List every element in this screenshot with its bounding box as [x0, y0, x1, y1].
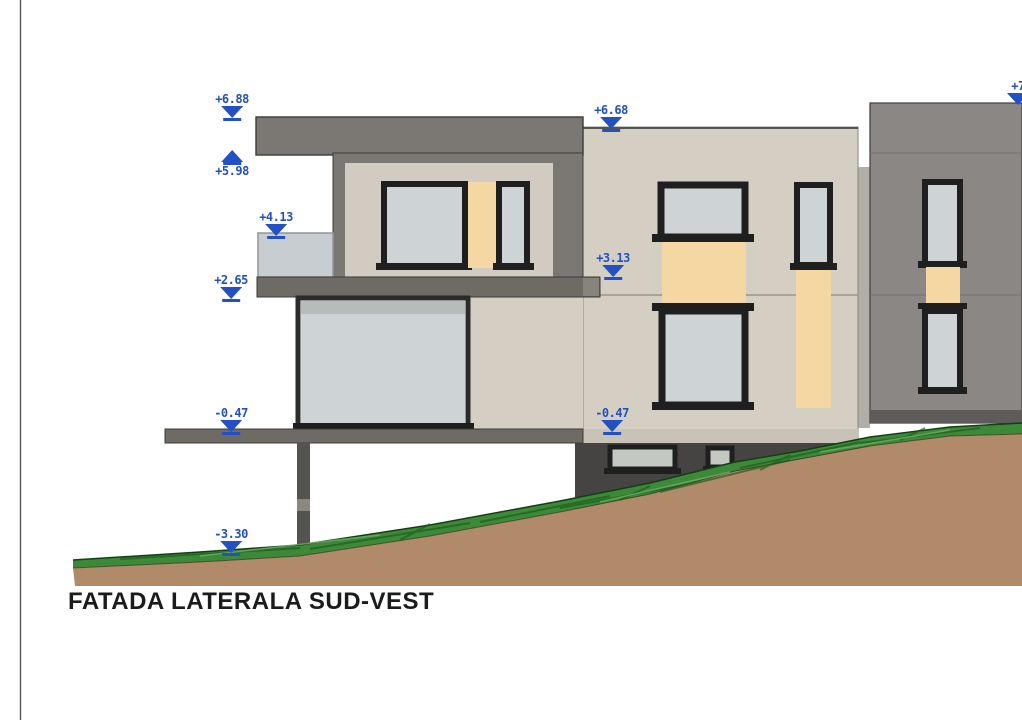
level-arrow-up-icon — [221, 150, 243, 162]
elevation-marker-m330: -3.30 — [214, 528, 248, 556]
level-baseline — [222, 299, 240, 302]
level-baseline — [603, 432, 621, 435]
level-arrow-down-icon — [1007, 93, 1022, 105]
basement-window-sill — [604, 468, 681, 474]
level-arrow-down-icon — [602, 265, 624, 277]
right-building-flank — [858, 167, 870, 428]
window-sill — [493, 263, 534, 270]
window — [662, 311, 745, 405]
level-arrow-down-icon — [600, 117, 622, 129]
elevation-label: +2.65 — [214, 274, 248, 287]
orange-spandrel-panel — [926, 267, 960, 307]
elevation-marker-m047-center: -0.47 — [595, 407, 629, 435]
elevation-label: +7 — [1011, 80, 1022, 93]
window — [925, 311, 960, 390]
elevation-label: +4.13 — [259, 211, 293, 224]
balcony-parapet — [258, 233, 333, 277]
column-light-segment — [297, 499, 310, 511]
elevation-label: -3.30 — [214, 528, 248, 541]
elevation-label: +3.13 — [596, 252, 630, 265]
window-sill — [918, 261, 967, 268]
window — [925, 182, 960, 264]
level-baseline — [602, 129, 620, 132]
ground-floor-wall — [468, 295, 583, 443]
column — [297, 443, 310, 546]
elevation-label: +6.68 — [594, 104, 628, 117]
level-arrow-down-icon — [220, 420, 242, 432]
balcony-slab — [257, 277, 600, 297]
elevation-marker-265: +2.65 — [214, 274, 248, 302]
level-baseline — [267, 236, 285, 239]
right-building-base-band — [870, 410, 1022, 423]
level-arrow-down-icon — [601, 420, 623, 432]
elevation-marker-598: +5.98 — [215, 150, 249, 178]
elevation-marker-7-clipped: +7 — [1007, 80, 1022, 105]
glass-door-pane — [301, 301, 465, 423]
level-arrow-down-icon — [221, 106, 243, 118]
window-sill — [652, 234, 754, 242]
window-sill — [652, 402, 754, 410]
elevation-drawing: +6.88 +5.98 +4.13 +2.65 +6.68 +3.13 -0.4… — [0, 0, 1022, 720]
level-baseline — [223, 118, 241, 121]
window — [499, 184, 527, 267]
elevation-marker-668: +6.68 — [594, 104, 628, 132]
elevation-marker-413: +4.13 — [259, 211, 293, 239]
level-arrow-down-icon — [265, 224, 287, 236]
orange-spandrel-panel — [662, 242, 746, 305]
elevation-label: +6.88 — [215, 93, 249, 106]
basement-window — [610, 447, 675, 469]
window — [661, 185, 745, 237]
elevation-label: -0.47 — [214, 407, 248, 420]
orange-spandrel-panel — [468, 182, 496, 268]
window-sill — [376, 263, 472, 270]
level-baseline — [222, 432, 240, 435]
level-arrow-down-icon — [220, 287, 242, 299]
glass-door-top-band — [301, 301, 465, 314]
elevation-marker-313: +3.13 — [596, 252, 630, 280]
roof-slab — [256, 117, 583, 155]
slab-corner — [583, 278, 599, 296]
level-baseline — [604, 277, 622, 280]
elevation-label: -0.47 — [595, 407, 629, 420]
orange-tall-panel — [796, 270, 831, 408]
elevation-marker-688: +6.88 — [215, 93, 249, 121]
level-baseline — [222, 553, 240, 556]
window-sill — [918, 387, 967, 394]
level-arrow-down-icon — [220, 541, 242, 553]
window — [384, 184, 465, 267]
elevation-marker-m047-left: -0.47 — [214, 407, 248, 435]
drawing-title: FATADA LATERALA SUD-VEST — [68, 588, 434, 616]
elevation-label: +5.98 — [215, 165, 249, 178]
window — [797, 185, 830, 265]
window-sill — [790, 263, 837, 270]
